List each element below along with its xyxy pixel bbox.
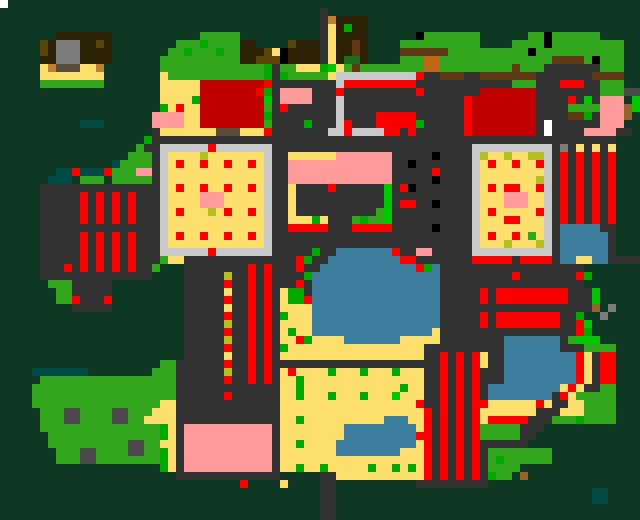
game-minimap	[0, 0, 640, 520]
minimap-canvas	[0, 0, 640, 520]
